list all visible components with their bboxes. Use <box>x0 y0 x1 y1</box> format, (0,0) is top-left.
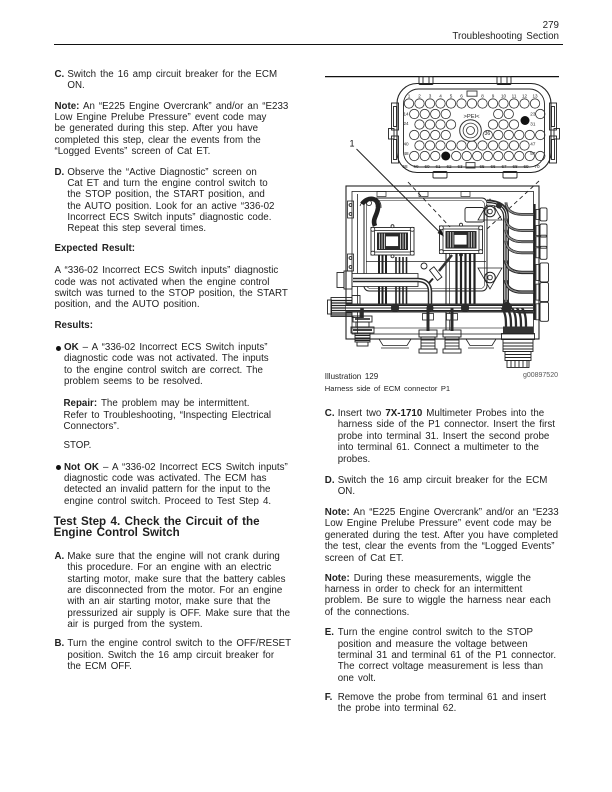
svg-text:14: 14 <box>404 112 410 117</box>
svg-text:62: 62 <box>446 164 452 169</box>
svg-text:11: 11 <box>512 94 517 99</box>
svg-text:48: 48 <box>404 151 410 156</box>
svg-text:3: 3 <box>429 94 432 99</box>
svg-text:40: 40 <box>404 142 410 147</box>
svg-text:63: 63 <box>457 164 463 169</box>
svg-text:58: 58 <box>402 164 408 169</box>
svg-text:66: 66 <box>490 164 496 169</box>
svg-text:24: 24 <box>404 121 410 126</box>
svg-text:>PEI<: >PEI< <box>463 114 480 120</box>
svg-text:13: 13 <box>532 94 538 99</box>
svg-text:68: 68 <box>512 164 518 169</box>
svg-text:69: 69 <box>523 164 529 169</box>
svg-text:60: 60 <box>424 164 430 169</box>
svg-text:1: 1 <box>408 94 411 99</box>
svg-text:23: 23 <box>530 112 536 117</box>
svg-text:1: 1 <box>350 139 355 149</box>
svg-text:36: 36 <box>485 131 491 137</box>
svg-text:65: 65 <box>479 164 485 169</box>
svg-text:5: 5 <box>450 94 453 99</box>
svg-text:59: 59 <box>413 164 419 169</box>
svg-text:61: 61 <box>435 164 441 169</box>
svg-text:4: 4 <box>439 94 442 99</box>
svg-text:10: 10 <box>501 94 507 99</box>
svg-text:57: 57 <box>530 151 536 156</box>
svg-text:70: 70 <box>534 164 540 169</box>
svg-text:47: 47 <box>530 142 536 147</box>
svg-text:9: 9 <box>492 94 495 99</box>
svg-text:31: 31 <box>530 122 536 127</box>
svg-text:2: 2 <box>418 94 421 99</box>
svg-text:12: 12 <box>522 94 528 99</box>
svg-text:8: 8 <box>481 94 484 99</box>
svg-text:67: 67 <box>501 164 507 169</box>
svg-text:6: 6 <box>460 94 463 99</box>
